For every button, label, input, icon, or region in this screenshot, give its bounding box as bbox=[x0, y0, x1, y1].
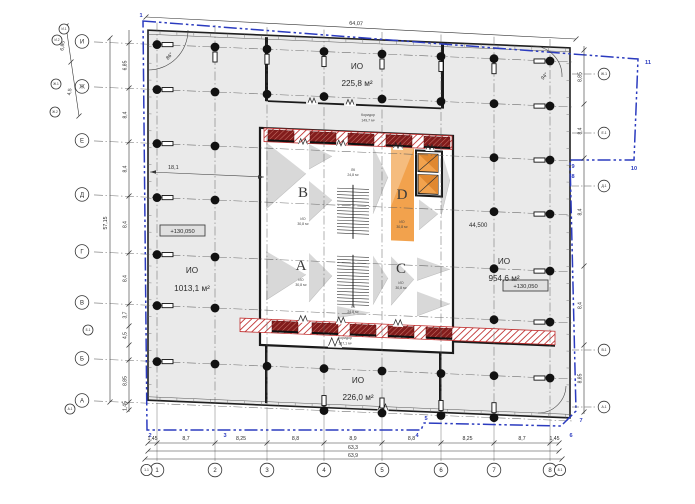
column bbox=[263, 45, 272, 54]
dim-text: 8,7 bbox=[518, 436, 525, 442]
dim-text: 4,5 bbox=[67, 88, 74, 96]
axis-bubble-right-label: А.1 bbox=[601, 405, 606, 409]
floor-plan-page: 1234567891011 86° 94° 1,458,78,258,88,98… bbox=[0, 0, 695, 504]
column-wall-stub bbox=[534, 212, 545, 216]
dim-text: 8,7 bbox=[182, 436, 189, 442]
boundary-vertex-label: 7 bbox=[579, 418, 582, 424]
column bbox=[490, 315, 499, 324]
column-wall-stub bbox=[534, 320, 545, 324]
column-wall-stub bbox=[492, 64, 496, 74]
dim-text: 8,85 bbox=[578, 72, 584, 82]
level-marker-left-text: +130,050 bbox=[170, 229, 194, 235]
dim-top-total: 64,07 bbox=[349, 21, 363, 28]
axis-bubble-left-secondary-label: Ж.2 bbox=[52, 110, 58, 114]
axis-bubble-left-secondary-label: Ж.1 bbox=[53, 82, 59, 86]
dim-text: 8,25 bbox=[236, 436, 246, 442]
zone-d-area1: ИО bbox=[399, 220, 405, 224]
floor-plan-canvas: 1234567891011 86° 94° 1,458,78,258,88,98… bbox=[0, 0, 695, 504]
axis-bubble-left-label: Б bbox=[80, 357, 84, 363]
zone-d-area2: 30,8 м² bbox=[396, 225, 408, 229]
column bbox=[378, 409, 387, 418]
column bbox=[546, 156, 555, 165]
column-wall-stub bbox=[162, 42, 173, 46]
column-wall-stub bbox=[322, 57, 326, 67]
axis-bubbles-bottom: 123456781.18.1 bbox=[141, 463, 566, 477]
zone-d-letter: D bbox=[397, 187, 408, 203]
column-wall-stub bbox=[534, 269, 545, 273]
hall-right-area: 954,6 м² bbox=[488, 274, 519, 283]
column bbox=[320, 47, 329, 56]
axis-bubble-right-label: В.1 bbox=[601, 348, 606, 352]
column bbox=[211, 360, 220, 369]
column-wall-stub bbox=[162, 141, 173, 145]
corridor-top-name: Коридор bbox=[361, 113, 375, 117]
hall-bottom-name: ИО bbox=[352, 376, 364, 385]
dim-text: 8,4 bbox=[578, 127, 584, 134]
dim-text: 6,85 bbox=[123, 60, 129, 70]
dim-left-total: 57,15 bbox=[103, 216, 109, 229]
dim-total-inner: 63,3 bbox=[348, 445, 358, 451]
hall-right-name: ИО bbox=[498, 257, 510, 266]
column bbox=[320, 406, 329, 415]
axis-bubble-left-label: Д bbox=[80, 193, 84, 199]
elevation-text: 44,500 bbox=[469, 223, 488, 229]
boundary-vertex-label: 10 bbox=[631, 166, 637, 172]
column bbox=[490, 371, 499, 380]
boundary-vertex-label: 4 bbox=[415, 433, 419, 439]
boundary-vertex-label: 3 bbox=[223, 433, 226, 439]
column bbox=[437, 411, 446, 420]
column bbox=[378, 367, 387, 376]
column bbox=[211, 88, 220, 97]
column bbox=[546, 102, 555, 111]
column bbox=[153, 301, 162, 310]
column bbox=[211, 196, 220, 205]
hall-top-area: 225,8 м² bbox=[341, 79, 372, 88]
column bbox=[211, 43, 220, 52]
column bbox=[320, 92, 329, 101]
zone-c-letter: C bbox=[396, 261, 406, 277]
column bbox=[437, 369, 446, 378]
dim-text: 8,25 bbox=[462, 436, 472, 442]
level-marker-right-text: +130,050 bbox=[513, 284, 537, 290]
boundary-vertex-label: 8 bbox=[571, 174, 574, 180]
column-wall-stub bbox=[322, 396, 326, 406]
boundary-vertex-label: 11 bbox=[645, 60, 651, 66]
dim-text: 8,85 bbox=[578, 373, 584, 383]
boundary-vertex-label: 1 bbox=[139, 13, 142, 19]
column bbox=[153, 139, 162, 148]
hall-left-name: ИО bbox=[186, 266, 198, 275]
dim-total-outer: 63,9 bbox=[348, 453, 358, 459]
dim-text: 8,8 bbox=[408, 436, 415, 442]
column-wall-stub bbox=[439, 400, 443, 410]
column bbox=[490, 153, 499, 162]
zone-b-area1: ИО bbox=[300, 217, 306, 221]
column-wall-stub bbox=[162, 87, 173, 91]
axis-bubble-left-label: И bbox=[80, 40, 84, 46]
dim-text: 1,45 bbox=[549, 436, 559, 442]
dim-text: 8,4 bbox=[123, 111, 129, 118]
stair-lower-area: 24,8 м² bbox=[347, 310, 359, 314]
column bbox=[263, 90, 272, 99]
column bbox=[153, 357, 162, 366]
column bbox=[211, 253, 220, 262]
axis-bubbles-right: Ж.1Е.1Д.1В.1А.1 bbox=[572, 68, 610, 413]
column-wall-stub bbox=[265, 54, 269, 64]
axis-bubble-left-label: Е bbox=[80, 139, 84, 145]
dim-text: 1,45 bbox=[147, 436, 157, 442]
axis-bubble-left-label: Ж bbox=[79, 85, 85, 91]
column bbox=[546, 267, 555, 276]
zone-a-area1: ИО bbox=[298, 278, 304, 282]
dim-text: 8,4 bbox=[578, 302, 584, 309]
zone-c-area2: 30,8 м² bbox=[395, 286, 407, 290]
hall-top-name: ИО bbox=[351, 62, 363, 71]
zone-a-area2: 30,8 м² bbox=[295, 283, 307, 287]
axis-bubbles-left: ИЖЕДГВБАИ.1И.2Ж.1Ж.2Б.1А.1 bbox=[50, 24, 93, 414]
building-slab-group bbox=[148, 30, 570, 419]
corridor-bottom-area: 137,1 м² bbox=[338, 342, 352, 346]
column-wall-stub bbox=[380, 59, 384, 69]
axis-bubble-right-label: Е.1 bbox=[601, 131, 606, 135]
zone-c-area1: ИО bbox=[398, 281, 404, 285]
axis-bubble-left-secondary-label: А.1 bbox=[68, 407, 73, 411]
column-wall-stub bbox=[534, 158, 545, 162]
axis-bubble-left-secondary-label: Б.1 bbox=[86, 328, 91, 332]
column-wall-stub bbox=[162, 195, 173, 199]
column bbox=[490, 99, 499, 108]
dim-text: 1,45 bbox=[123, 401, 129, 411]
zone-a-letter: A bbox=[296, 258, 307, 274]
column-wall-stub bbox=[162, 252, 173, 256]
column bbox=[378, 95, 387, 104]
column-wall-stub bbox=[534, 376, 545, 380]
column bbox=[490, 413, 499, 422]
column-wall-stub bbox=[439, 61, 443, 71]
column bbox=[546, 374, 555, 383]
axis-bubble-left-secondary-label: И.1 bbox=[62, 27, 67, 31]
axis-bubble-left-label: А bbox=[80, 399, 84, 405]
dim-text: 3,7 bbox=[123, 311, 129, 318]
corridor-bottom-name: Коридор bbox=[338, 336, 352, 340]
boundary-vertex-label: 5 bbox=[424, 416, 427, 422]
column bbox=[437, 52, 446, 61]
column bbox=[437, 97, 446, 106]
column bbox=[211, 304, 220, 313]
column-wall-stub bbox=[213, 52, 217, 62]
dim-text: 4,5 bbox=[123, 332, 129, 339]
column bbox=[211, 142, 220, 151]
column-wall-stub bbox=[162, 303, 173, 307]
corridor-top-area: 149,7 м² bbox=[361, 119, 375, 123]
zone-b-letter: B bbox=[298, 185, 308, 201]
axis-bubble-right-label: Ж.1 bbox=[601, 72, 607, 76]
dim-text: 8,4 bbox=[123, 165, 129, 172]
column-wall-stub bbox=[162, 359, 173, 363]
column bbox=[490, 54, 499, 63]
axis-bubble-right-label: Д.1 bbox=[601, 184, 606, 188]
stair-upper-area: 24,8 м² bbox=[347, 173, 359, 177]
column bbox=[546, 318, 555, 327]
column bbox=[153, 193, 162, 202]
column-wall-stub bbox=[534, 59, 545, 63]
column bbox=[378, 50, 387, 59]
column bbox=[490, 207, 499, 216]
inner-dim-text: 18,1 bbox=[168, 165, 179, 171]
dim-text: 8,4 bbox=[578, 208, 584, 215]
hall-bottom-area: 226,0 м² bbox=[342, 393, 373, 402]
column bbox=[320, 364, 329, 373]
axis-bubble-left-secondary-label: И.2 bbox=[55, 38, 60, 42]
dim-text: 8,4 bbox=[123, 221, 129, 228]
dim-text: 8,8 bbox=[292, 436, 299, 442]
boundary-vertex-label: 6 bbox=[569, 433, 572, 439]
column bbox=[263, 362, 272, 371]
column bbox=[153, 85, 162, 94]
dim-text: 8,85 bbox=[123, 376, 129, 386]
column-wall-stub bbox=[534, 104, 545, 108]
column-wall-stub bbox=[380, 398, 384, 408]
column-wall-stub bbox=[492, 403, 496, 413]
column bbox=[153, 40, 162, 49]
hall-left-area: 1013,1 м² bbox=[174, 284, 210, 293]
column bbox=[546, 57, 555, 66]
column bbox=[546, 210, 555, 219]
level-marker-left: +130,050 bbox=[160, 225, 205, 236]
dim-text: 8,9 bbox=[349, 436, 356, 442]
dim-text: 8,4 bbox=[123, 275, 129, 282]
axis-bubble-bottom-edge-label: 8.1 bbox=[558, 468, 563, 472]
axis-bubble-bottom-edge-label: 1.1 bbox=[144, 468, 149, 472]
axis-bubble-left-label: В bbox=[80, 301, 84, 307]
zone-b-area2: 30,8 м² bbox=[297, 222, 309, 226]
boundary-vertex-label: 9 bbox=[571, 164, 574, 170]
column bbox=[153, 250, 162, 259]
